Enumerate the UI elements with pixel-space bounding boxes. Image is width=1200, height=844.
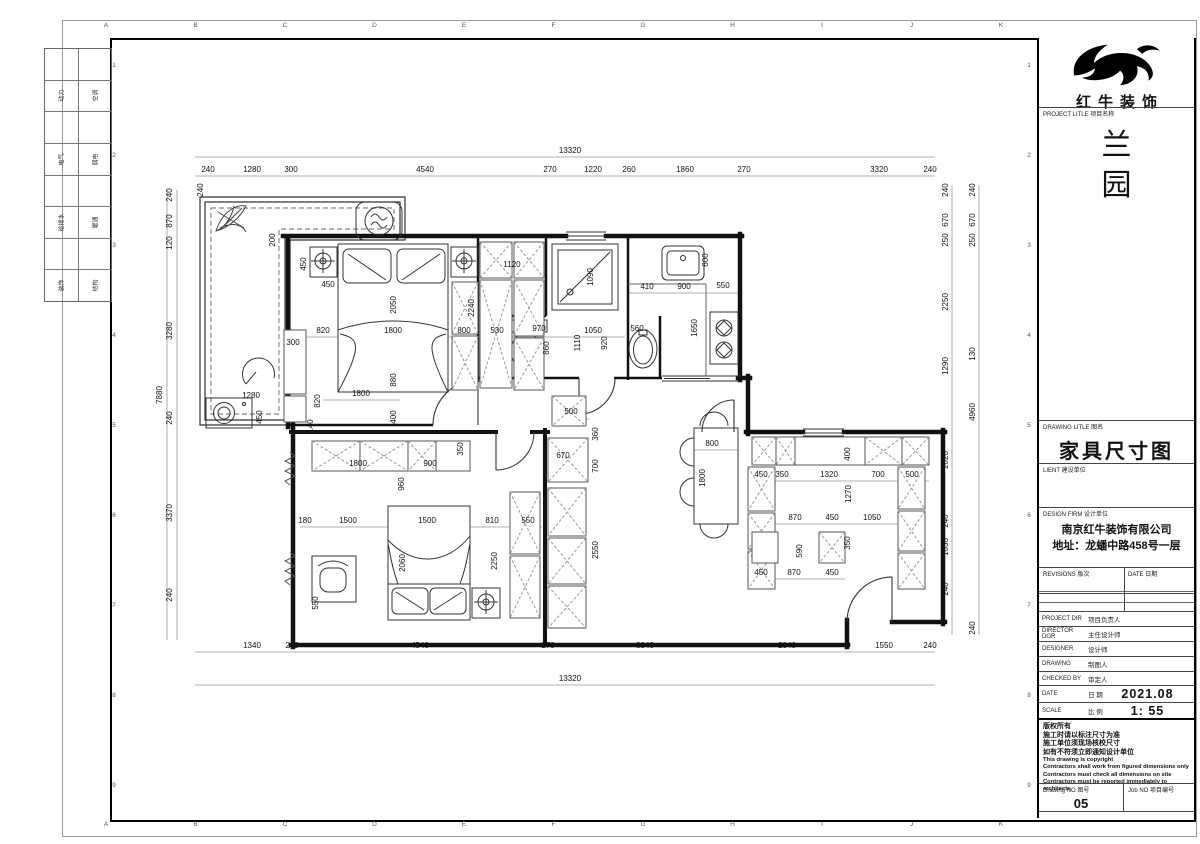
drawing-no-label: Drawing NO 图号 — [1039, 783, 1123, 794]
dim-label: 350 — [843, 536, 852, 550]
grid-number: 6 — [112, 512, 116, 519]
titleblock-row: SCALE比 例1: 55 — [1039, 702, 1194, 718]
dining-set — [680, 412, 738, 538]
dim-label: 240 — [165, 588, 174, 602]
kitchen-sink — [662, 246, 704, 280]
drawing-title-label: DRAWING LITLE 图名 — [1039, 420, 1194, 431]
dim-label: 1290 — [941, 357, 950, 375]
dim-label: 4540 — [411, 641, 429, 650]
grid-number: 8 — [112, 692, 116, 699]
project-name-label: PROJECT LITLE 项目名称 — [1039, 107, 1194, 118]
drawing-title: 家具尺寸图 — [1039, 435, 1194, 464]
grid-letter: C — [283, 22, 288, 29]
dim-label: 360 — [591, 427, 600, 441]
dim-label: 1050 — [863, 513, 881, 522]
dim-label: 880 — [389, 373, 398, 387]
titleblock-row: PROJECT DIR项目负责人 — [1039, 611, 1194, 626]
dim-label: 2550 — [591, 541, 600, 559]
row-label-cn: 日 期 — [1088, 689, 1103, 699]
grid-number: 1 — [1027, 62, 1031, 69]
dim-label: 870 — [787, 568, 801, 577]
dim-label: 450 — [825, 568, 839, 577]
grid-number: 4 — [112, 332, 116, 339]
company-logo: 红牛装饰 — [1039, 40, 1194, 112]
grid-letter: J — [910, 821, 913, 828]
project-name-line2: 园 — [1039, 166, 1194, 206]
dim-label: 240 — [941, 582, 950, 596]
titleblock-row: DIRECTOR DGR主任设计师 — [1039, 626, 1194, 641]
note-line-en: Contractors must check all dimensions on… — [1043, 772, 1190, 779]
design-firm-name: 南京红牛装饰有限公司 — [1039, 521, 1194, 537]
dim-label: 700 — [871, 470, 885, 479]
dim-label: 400 — [389, 410, 398, 424]
grid-letter: E — [462, 22, 466, 29]
dim-label: 670 — [968, 213, 977, 227]
dim-label: 1800 — [352, 389, 370, 398]
dim-label: 3280 — [165, 322, 174, 340]
grid-number: 6 — [1027, 512, 1031, 519]
grid-number: 5 — [1027, 422, 1031, 429]
grid-letter: C — [283, 821, 288, 828]
dim-label: 300 — [286, 338, 300, 347]
dim-label: 450 — [255, 410, 264, 424]
job-no-label: Job NO 项目编号 — [1124, 783, 1194, 794]
grid-letter: F — [552, 821, 556, 828]
grid-letter: G — [640, 22, 645, 29]
dim-label: 870 — [788, 513, 802, 522]
dim-label: 1800 — [349, 459, 367, 468]
dim-label: 920 — [600, 336, 609, 350]
row-label-en: DESIGNER — [1042, 646, 1088, 652]
dim-label: 820 — [313, 394, 322, 408]
row-value: 2021.08 — [1109, 687, 1186, 701]
dim-label: 2020 — [941, 451, 950, 469]
dim-label: 240 — [196, 183, 205, 197]
grid-number: 3 — [1027, 242, 1031, 249]
note-line-cn: 如有不符须立即通知设计单位 — [1043, 749, 1190, 758]
note-line-cn: 施工时请以标注尺寸为准 — [1043, 732, 1190, 741]
note-line-cn: 施工单位须现场核校尺寸 — [1043, 740, 1190, 749]
revisions-label: REVISIONS 版次 — [1039, 567, 1124, 580]
row-label-cn: 主任设计师 — [1088, 629, 1121, 639]
dim-label: 2240 — [467, 299, 476, 317]
grid-letter: J — [910, 22, 913, 29]
grid-number: 8 — [1027, 692, 1031, 699]
dim-label: 300 — [284, 165, 298, 174]
row-label-en: DATE — [1042, 691, 1088, 697]
dim-label: 410 — [640, 282, 654, 291]
desk — [312, 556, 356, 602]
design-firm-label: DESIGN FIRM 设计单位 — [1039, 507, 1194, 518]
dim-label: 1280 — [243, 165, 261, 174]
dim-label: 1320 — [820, 470, 838, 479]
grid-letter: E — [462, 821, 466, 828]
dim-label: 350 — [456, 442, 465, 456]
grid-letter: K — [999, 22, 1003, 29]
grid-letter: A — [104, 22, 108, 29]
title-block: 红牛装饰 PROJECT LITLE 项目名称 兰 园 DRAWING LITL… — [1037, 38, 1194, 818]
grid-letter: F — [552, 22, 556, 29]
dim-label: 270 — [541, 641, 555, 650]
grid-number: 2 — [112, 152, 116, 159]
dim-label: 1550 — [875, 641, 893, 650]
dim-label: 450 — [825, 513, 839, 522]
armchair — [243, 358, 275, 384]
dim-label: 240 — [201, 165, 215, 174]
dim-label: 1090 — [586, 268, 595, 286]
dim-label: 4540 — [416, 165, 434, 174]
row-label-en: SCALE — [1042, 708, 1088, 714]
dim-label: 820 — [316, 326, 330, 335]
dim-label: 550 — [716, 281, 730, 290]
grid-letter: G — [640, 821, 645, 828]
dim-label: 1120 — [503, 260, 521, 269]
dim-label: 450 — [754, 470, 768, 479]
dim-label: 4960 — [968, 403, 977, 421]
dim-label: 240 — [165, 411, 174, 425]
dim-label: 240 — [923, 165, 937, 174]
grid-number: 7 — [1027, 602, 1031, 609]
sheet-number-row: Drawing NO 图号 05 Job NO 项目编号 — [1039, 783, 1194, 812]
grid-letter: D — [372, 22, 377, 29]
dim-label: 400 — [843, 447, 852, 461]
dim-label: 1270 — [844, 485, 853, 503]
client-label: LIENT 建设单位 — [1039, 463, 1194, 474]
dim-label: 180 — [298, 516, 312, 525]
grid-letter: H — [730, 22, 735, 29]
dim-label: 590 — [795, 544, 804, 558]
dim-label: 960 — [397, 477, 406, 491]
dim-label: 670 — [941, 213, 950, 227]
dim-label: 240 — [941, 514, 950, 528]
note-line-en: This drawing is copyright — [1043, 757, 1190, 764]
dim-label: 450 — [754, 568, 768, 577]
row-label-cn: 项目负责人 — [1088, 614, 1121, 624]
row-label-en: CHECKED BY — [1042, 676, 1088, 682]
dim-label: 800 — [705, 439, 719, 448]
dim-label: 1800 — [698, 469, 707, 487]
dim-label: 7880 — [155, 386, 164, 404]
dim-label: 1280 — [242, 391, 260, 400]
grid-number: 5 — [112, 422, 116, 429]
dim-label: 1860 — [676, 165, 694, 174]
titleblock-row: DESIGNER设计师 — [1039, 641, 1194, 656]
project-name-line1: 兰 — [1039, 126, 1194, 166]
dim-label: 3370 — [165, 504, 174, 522]
grid-letter: B — [193, 22, 197, 29]
revisions-date-label: DATE 日期 — [1124, 567, 1157, 580]
row-label-cn: 比 例 — [1088, 706, 1103, 716]
grid-number: 9 — [112, 782, 116, 789]
row-value: 1: 55 — [1109, 704, 1186, 718]
grid-number: 4 — [1027, 332, 1031, 339]
dim-label: 1110 — [573, 334, 582, 351]
door-swings — [433, 378, 892, 622]
dim-label: 200 — [268, 233, 277, 247]
grid-letter: B — [193, 821, 197, 828]
dim-label: 2250 — [941, 293, 950, 311]
dim-label: 870 — [165, 214, 174, 228]
dim-label: 900 — [677, 282, 691, 291]
dim-label: 1500 — [418, 516, 436, 525]
drawing-sheet: 动力空调电气弱电给排水暖通装饰结构 — [0, 0, 1200, 844]
grid-letter: A — [104, 821, 108, 828]
dim-label: 1340 — [243, 641, 261, 650]
wash-basin — [629, 330, 657, 368]
row-label-cn: 设计师 — [1088, 644, 1108, 654]
dim-label: 1030 — [941, 538, 950, 556]
titleblock-row: DRAWING制图人 — [1039, 656, 1194, 671]
grid-number: 7 — [112, 602, 116, 609]
dim-label: 2050 — [389, 296, 398, 314]
dim-label: 530 — [490, 326, 504, 335]
dim-label: 1050 — [584, 326, 602, 335]
dim-label: 3320 — [870, 165, 888, 174]
dim-label: 900 — [423, 459, 437, 468]
dim-label: 1220 — [584, 165, 602, 174]
dim-label: 240 — [923, 641, 937, 650]
dim-label: 350 — [775, 470, 789, 479]
dim-label: 240 — [285, 641, 299, 650]
dim-label: 2060 — [398, 554, 407, 572]
floor-plan-canvas: 1332024012803004540270122026018602703320… — [0, 0, 1200, 844]
dim-label: 260 — [622, 165, 636, 174]
shower-stall — [552, 244, 618, 310]
dim-label: 2250 — [490, 552, 499, 570]
dim-label: 550 — [311, 596, 320, 610]
gas-stove — [710, 312, 738, 364]
row-label-cn: 审定人 — [1088, 674, 1108, 684]
drawing-no-value: 05 — [1039, 796, 1123, 811]
dim-label: 140 — [306, 419, 315, 433]
dim-label: 800 — [457, 326, 471, 335]
bed-master — [338, 244, 448, 392]
row-label-en: DRAWING — [1042, 661, 1088, 667]
dim-label: 130 — [968, 347, 977, 361]
dim-label: 560 — [630, 324, 644, 333]
dim-label: 1500 — [339, 516, 357, 525]
row-label-cn: 制图人 — [1088, 659, 1108, 669]
dim-label: 240 — [941, 183, 950, 197]
dim-label: 700 — [591, 459, 600, 473]
dim-label: 810 — [485, 516, 499, 525]
titleblock-row: DATE日 期2021.08 — [1039, 685, 1194, 702]
grid-letter: H — [730, 821, 735, 828]
dim-label: 240 — [165, 188, 174, 202]
dim-label: 240 — [968, 621, 977, 635]
dim-label: 13320 — [559, 674, 582, 683]
dim-label: 2040 — [778, 641, 796, 650]
washing-machine — [206, 398, 252, 428]
dim-label: 250 — [968, 233, 977, 247]
grid-number: 2 — [1027, 152, 1031, 159]
dim-label: 240 — [968, 183, 977, 197]
grid-letter: I — [821, 821, 823, 828]
dim-label: 500 — [905, 470, 919, 479]
dim-label: 970 — [532, 324, 546, 333]
row-label-en: PROJECT DIR — [1042, 616, 1088, 622]
dim-label: 450 — [299, 257, 308, 271]
dim-label: 550 — [521, 516, 535, 525]
titleblock-row: CHECKED BY审定人 — [1039, 671, 1194, 685]
signature-rows: PROJECT DIR项目负责人DIRECTOR DGR主任设计师DESIGNE… — [1039, 611, 1194, 718]
grid-number: 3 — [112, 242, 116, 249]
dim-label: 500 — [564, 407, 578, 416]
dim-label: 1800 — [384, 326, 402, 335]
dim-label: 120 — [165, 236, 174, 250]
grid-number: 1 — [112, 62, 116, 69]
design-firm-address: 地址：龙蟠中路458号一层 — [1039, 537, 1194, 553]
grid-letter: I — [821, 22, 823, 29]
dim-label: 13320 — [559, 146, 582, 155]
grid-letter: K — [999, 821, 1003, 828]
dim-label: 600 — [701, 253, 710, 267]
dim-label: 250 — [941, 233, 950, 247]
dim-label: 3340 — [636, 641, 654, 650]
row-label-en: DIRECTOR DGR — [1042, 628, 1088, 640]
dim-label: 860 — [542, 341, 551, 355]
dim-label: 1650 — [690, 319, 699, 337]
dim-label: 270 — [737, 165, 751, 174]
grid-letter: D — [372, 821, 377, 828]
grid-number: 9 — [1027, 782, 1031, 789]
revisions-table: REVISIONS 版次 DATE 日期 — [1039, 567, 1194, 611]
dim-label: 670 — [556, 451, 570, 460]
note-line-cn: 版权所有 — [1043, 723, 1190, 732]
dim-label: 450 — [321, 280, 335, 289]
dim-label: 270 — [543, 165, 557, 174]
note-line-en: Contractors shall work from figured dime… — [1043, 764, 1190, 771]
plant-icon — [216, 206, 246, 232]
